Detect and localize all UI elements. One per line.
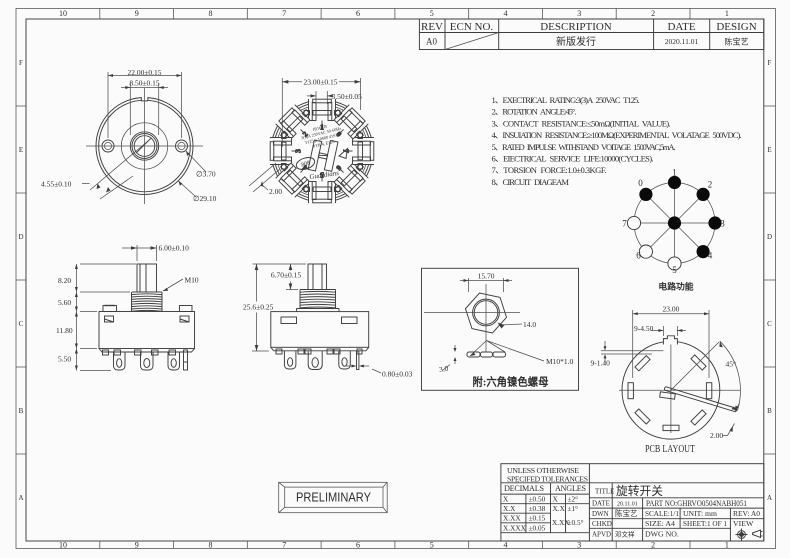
svg-text:ECN NO.: ECN NO. [450, 21, 494, 33]
svg-text:4: 4 [504, 9, 508, 18]
svg-text:23.00: 23.00 [662, 305, 679, 314]
svg-text:15.70: 15.70 [478, 272, 495, 281]
svg-text:邓文祥: 邓文祥 [615, 529, 635, 538]
svg-text:8: 8 [209, 541, 213, 550]
svg-text:SHEET:1 OF 1: SHEET:1 OF 1 [683, 519, 727, 528]
svg-text:2: 2 [708, 180, 713, 190]
svg-text:3: 3 [294, 149, 303, 153]
svg-text:D: D [767, 233, 772, 241]
svg-text:F: F [768, 59, 772, 67]
svg-text:X.X: X.X [503, 504, 516, 513]
svg-text:3: 3 [720, 219, 725, 229]
svg-text:DWN: DWN [592, 510, 609, 518]
svg-text:DWG NO.: DWG NO. [645, 530, 679, 539]
svg-text:8.20: 8.20 [58, 276, 71, 285]
svg-text:F: F [19, 59, 23, 67]
svg-text:6.00±0.10: 6.00±0.10 [159, 244, 190, 253]
svg-text:6.70±0.15: 6.70±0.15 [271, 271, 302, 280]
svg-text:5: 5 [672, 265, 677, 275]
svg-text:±0.5°: ±0.5° [568, 518, 584, 527]
svg-text:5: 5 [430, 541, 434, 550]
svg-text:旋转开关: 旋转开关 [616, 483, 663, 498]
svg-text:PCB LAYOUT: PCB LAYOUT [645, 443, 695, 455]
svg-text:2.00: 2.00 [269, 187, 282, 196]
svg-text:陈宝艺: 陈宝艺 [615, 508, 638, 518]
svg-text:DATE: DATE [592, 500, 610, 508]
svg-text:14.0: 14.0 [523, 320, 536, 329]
svg-text:APVD: APVD [592, 531, 611, 539]
svg-text:REV: A0: REV: A0 [733, 509, 760, 518]
svg-text:±1°: ±1° [568, 504, 579, 513]
svg-text:A: A [18, 494, 23, 502]
svg-text:4: 4 [504, 541, 508, 550]
svg-text:SPECIFED TOLERANCES: SPECIFED TOLERANCES [507, 475, 588, 484]
svg-text:C: C [19, 320, 24, 328]
svg-text:0: 0 [638, 178, 643, 188]
svg-text:22.00±0.15: 22.00±0.15 [127, 68, 161, 77]
svg-text:C: C [767, 320, 772, 328]
svg-text:3: 3 [577, 9, 581, 18]
svg-text:M10: M10 [185, 276, 199, 285]
svg-text:7、TORSION FORCE:1.0±0.3KGF.: 7、TORSION FORCE:1.0±0.3KGF. [492, 165, 607, 175]
svg-text:±0.50: ±0.50 [529, 495, 546, 504]
svg-text:25.6±0.25: 25.6±0.25 [243, 303, 274, 312]
svg-text:8.50±0.15: 8.50±0.15 [129, 79, 160, 88]
svg-text:±0.38: ±0.38 [529, 504, 546, 513]
svg-text:PRELIMINARY: PRELIMINARY [296, 491, 372, 505]
svg-text:E: E [19, 146, 23, 154]
svg-text:45°: 45° [726, 360, 737, 369]
svg-text:DESIGN: DESIGN [716, 21, 756, 33]
svg-text:7: 7 [622, 219, 627, 229]
svg-text:CHKD: CHKD [592, 520, 612, 528]
svg-text:E: E [767, 146, 771, 154]
svg-text:3.50±0.05: 3.50±0.05 [332, 92, 363, 101]
svg-text:10: 10 [59, 541, 67, 550]
svg-text:11.80: 11.80 [56, 326, 73, 335]
svg-text:6: 6 [356, 541, 360, 550]
svg-text:6: 6 [356, 9, 360, 18]
svg-text:B: B [19, 407, 24, 415]
svg-text:M10*1.0: M10*1.0 [546, 357, 574, 366]
svg-text:DESCRIPTION: DESCRIPTION [540, 21, 612, 33]
svg-text:9-1.40: 9-1.40 [591, 359, 611, 368]
svg-text:5.50: 5.50 [58, 355, 71, 364]
svg-text:5: 5 [430, 9, 434, 18]
svg-text:7: 7 [282, 9, 286, 18]
svg-text:2: 2 [651, 541, 655, 550]
svg-text:X: X [553, 495, 559, 504]
svg-text:1: 1 [725, 541, 729, 550]
svg-text:电路功能: 电路功能 [658, 281, 693, 292]
svg-text:8、CIRCUIT DIAGEAM: 8、CIRCUIT DIAGEAM [492, 177, 570, 187]
svg-text:5、RATED IMPULSE WITHSTAND VOIT: 5、RATED IMPULSE WITHSTAND VOITAGE 1500VA… [492, 142, 676, 152]
svg-text:DECIMALS: DECIMALS [504, 484, 544, 493]
svg-text:9-4.50: 9-4.50 [634, 324, 654, 333]
svg-text:X: X [503, 495, 509, 504]
svg-text:A: A [767, 494, 772, 502]
svg-text:REV: REV [421, 21, 443, 33]
svg-text:SCALE:1/1: SCALE:1/1 [645, 509, 679, 518]
svg-text:7: 7 [282, 541, 286, 550]
svg-text:4.55±0.10: 4.55±0.10 [41, 180, 72, 189]
svg-text:9: 9 [135, 541, 139, 550]
svg-text:2020.11.01: 2020.11.01 [665, 37, 699, 46]
svg-text:5.60: 5.60 [58, 298, 71, 307]
svg-text:2.00: 2.00 [710, 431, 723, 440]
svg-text:3: 3 [577, 541, 581, 550]
svg-text:1: 1 [725, 9, 729, 18]
svg-text:±2°: ±2° [568, 495, 579, 504]
svg-text:新版发行: 新版发行 [556, 35, 596, 48]
svg-text:X.X: X.X [553, 504, 566, 513]
svg-text:ANGLES: ANGLES [555, 484, 586, 493]
svg-text:1: 1 [672, 168, 677, 178]
svg-text:PART NO:GHRVO0504NABH051: PART NO:GHRVO0504NABH051 [646, 499, 747, 508]
svg-text:3、CONTACT RESISTANCE:≤50mΩ(INI: 3、CONTACT RESISTANCE:≤50mΩ(INITIAL VALUE… [492, 118, 671, 128]
svg-text:20.11.01: 20.11.01 [617, 501, 638, 507]
svg-text:陈宝艺: 陈宝艺 [725, 37, 749, 47]
svg-text:4: 4 [708, 251, 713, 261]
svg-text:6、EIECTRICAL SERVICE LIFE:1000: 6、EIECTRICAL SERVICE LIFE:10000(CYCLES). [492, 154, 654, 164]
svg-text:B: B [767, 407, 772, 415]
svg-text:∅29.10: ∅29.10 [193, 194, 217, 203]
svg-text:1、EXECTRICAL RATING:3(3)A 250V: 1、EXECTRICAL RATING:3(3)A 250VAC T125. [492, 95, 640, 105]
svg-text:2、ROTATION ANGLE:45°.: 2、ROTATION ANGLE:45°. [492, 107, 577, 117]
svg-text:6: 6 [636, 251, 641, 261]
svg-text:附:六角镍色螺母: 附:六角镍色螺母 [473, 375, 549, 389]
svg-text:±0.05: ±0.05 [529, 524, 546, 533]
svg-text:D: D [18, 233, 23, 241]
svg-text:X.XXX: X.XXX [503, 524, 527, 533]
svg-text:9: 9 [135, 9, 139, 18]
svg-text:2: 2 [651, 9, 655, 18]
svg-text:TITLE: TITLE [595, 488, 614, 496]
svg-text:0.80±0.03: 0.80±0.03 [382, 370, 413, 379]
svg-text:4、INSUIATION RESISTANCE:≥100MΩ: 4、INSUIATION RESISTANCE:≥100MΩ(EXPERIMEN… [492, 130, 742, 140]
svg-text:UNIT: mm: UNIT: mm [683, 509, 717, 518]
svg-text:∅3.70: ∅3.70 [196, 170, 216, 179]
svg-text:DATE: DATE [667, 21, 695, 33]
svg-text:X.XX: X.XX [503, 514, 521, 523]
svg-text:±0.15: ±0.15 [529, 514, 546, 523]
svg-text:3.0: 3.0 [438, 364, 449, 375]
svg-text:SIZE: A4: SIZE: A4 [645, 519, 675, 528]
svg-text:A0: A0 [426, 37, 437, 47]
svg-text:10: 10 [59, 9, 67, 18]
svg-text:23.00±0.15: 23.00±0.15 [303, 77, 337, 86]
svg-text:8: 8 [209, 9, 213, 18]
svg-text:VIEW: VIEW [733, 519, 754, 528]
